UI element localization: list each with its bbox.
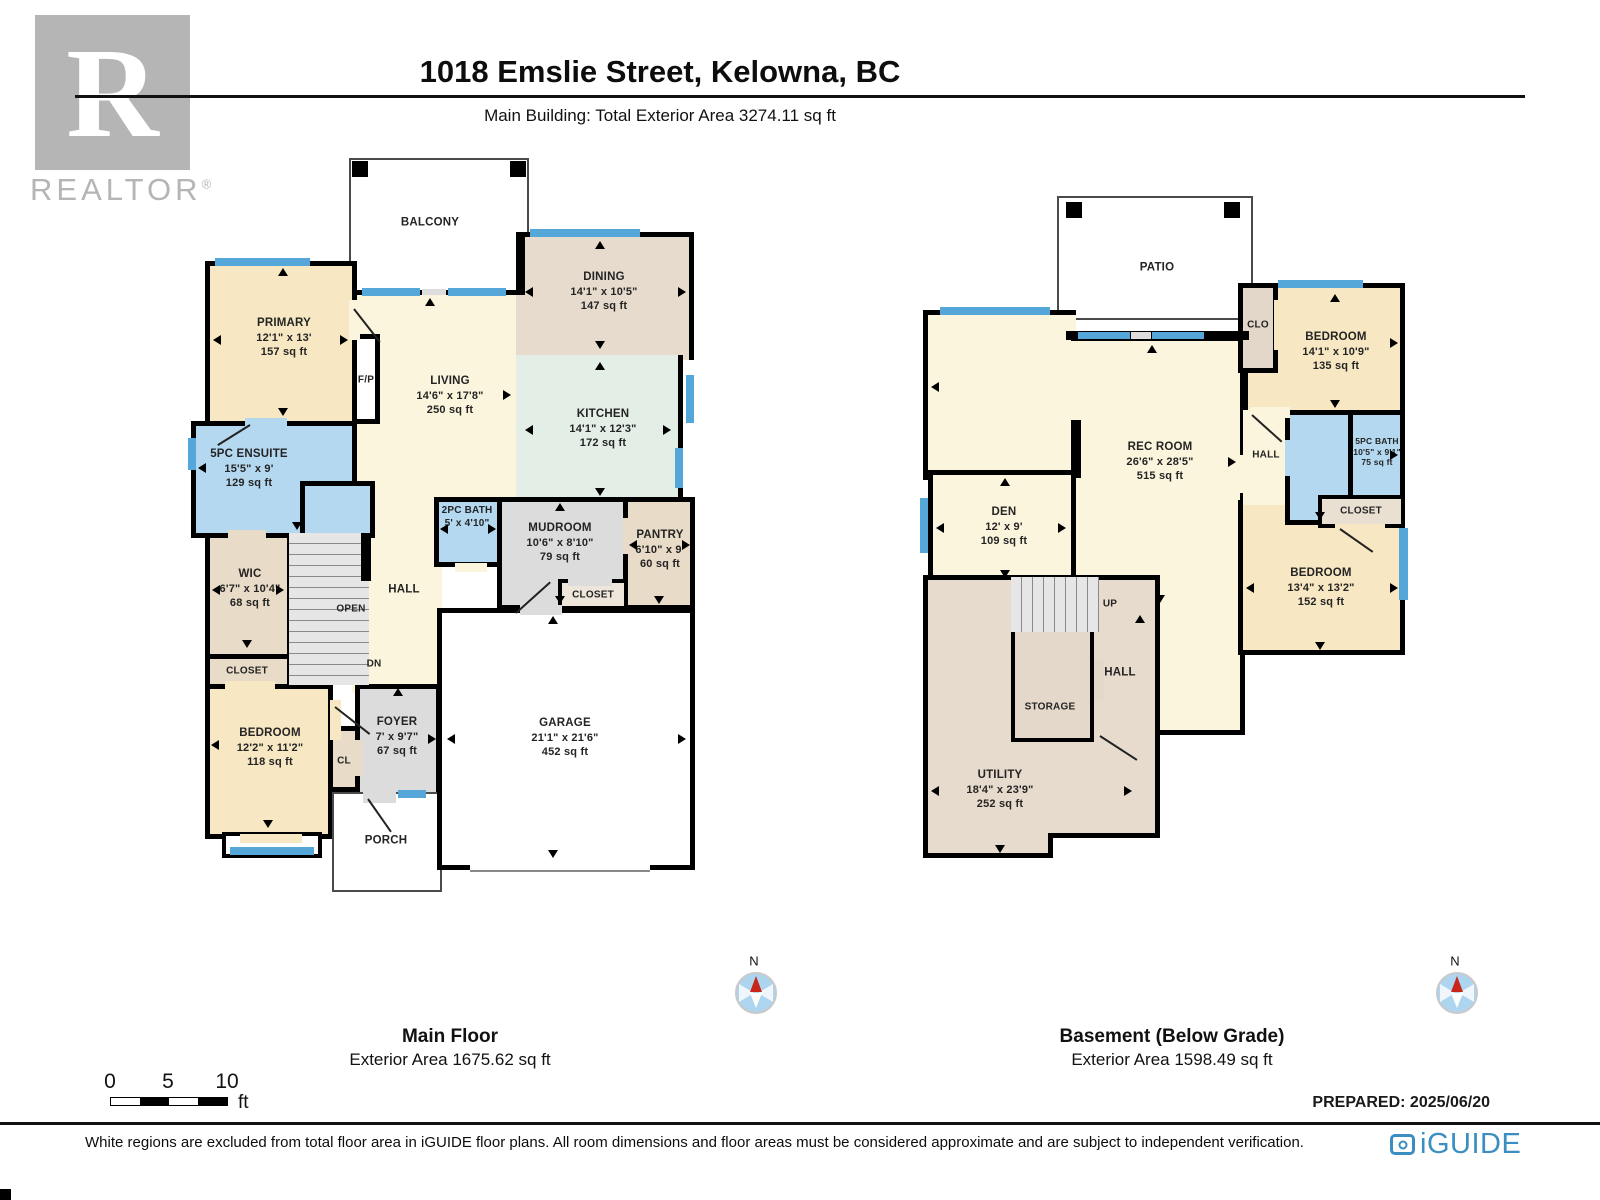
realtor-logo: R <box>35 15 190 170</box>
room-label: FOYER7' x 9'7"67 sq ft <box>376 715 419 759</box>
room-label: CLOSET <box>572 589 614 602</box>
room-label: PRIMARY12'1" x 13'157 sq ft <box>256 316 311 360</box>
room-storage <box>1011 627 1094 742</box>
room-label: BEDROOM14'1" x 10'9"135 sq ft <box>1302 330 1369 374</box>
room-label: PORCH <box>365 834 408 849</box>
room-label: HALL <box>388 583 419 598</box>
room-label: MUDROOM10'6" x 8'10"79 sq ft <box>526 521 593 565</box>
compass-icon <box>1436 972 1478 1014</box>
main-floor-caption: Main Floor Exterior Area 1675.62 sq ft <box>349 1026 550 1070</box>
room-label: OPEN <box>336 603 365 616</box>
room-label: PANTRY6'10" x 9'60 sq ft <box>635 528 684 572</box>
room-label: CL <box>337 755 351 768</box>
room-label: WIC6'7" x 10'4"68 sq ft <box>220 567 281 611</box>
room-label: CLO <box>1247 319 1269 332</box>
room-label: REC ROOM26'6" x 28'5"515 sq ft <box>1126 440 1193 484</box>
footer-disclaimer: White regions are excluded from total fl… <box>85 1134 1304 1151</box>
room-label: BALCONY <box>401 216 459 231</box>
scale-tick: 10 <box>215 1070 238 1094</box>
room-label: HALL <box>1104 666 1135 681</box>
patio-post <box>1066 202 1082 218</box>
room-label: DEN12' x 9'109 sq ft <box>981 505 1027 549</box>
room-label: CLOSET <box>226 665 268 678</box>
room-rec-left <box>923 310 1076 480</box>
room-label: LIVING14'6" x 17'8"250 sq ft <box>416 374 483 418</box>
room-label: CLOSET <box>1340 505 1382 518</box>
room-label: 5PC ENSUITE15'5" x 9'129 sq ft <box>210 447 288 491</box>
floor-title: Basement (Below Grade) <box>1060 1026 1285 1048</box>
compass-north-label: N <box>1450 954 1459 969</box>
page-title: 1018 Emslie Street, Kelowna, BC <box>420 54 901 90</box>
compass-north-label: N <box>749 954 758 969</box>
page-corner-mark <box>0 1189 11 1200</box>
room-label: UP <box>1103 598 1117 611</box>
balcony-post <box>510 161 526 177</box>
floor-plan-page: R REALTOR® 1018 Emslie Street, Kelowna, … <box>0 0 1600 1200</box>
compass-icon <box>735 972 777 1014</box>
footer-rule <box>0 1122 1600 1125</box>
room-label: F/P <box>358 374 374 387</box>
room-label: HALL <box>1252 449 1279 462</box>
floor-area: Exterior Area 1675.62 sq ft <box>349 1050 550 1070</box>
room-label: BEDROOM12'2" x 11'2"118 sq ft <box>237 726 304 770</box>
floor-title: Main Floor <box>349 1026 550 1048</box>
room-ensuite-wc <box>300 481 375 538</box>
room-label: KITCHEN14'1" x 12'3"172 sq ft <box>569 407 636 451</box>
room-label: DINING14'1" x 10'5"147 sq ft <box>570 270 637 314</box>
room-label: 2PC BATH5' x 4'10" <box>442 504 493 530</box>
scale-tick: 5 <box>162 1070 174 1094</box>
room-label: STORAGE <box>1025 701 1076 714</box>
patio-post <box>1224 202 1240 218</box>
prepared-date: PREPARED: 2025/06/20 <box>1312 1094 1490 1112</box>
registered-mark-icon: ® <box>202 177 216 192</box>
balcony-post <box>352 161 368 177</box>
utility-notch <box>1048 833 1160 858</box>
scale-tick: 0 <box>104 1070 116 1094</box>
basement-caption: Basement (Below Grade) Exterior Area 159… <box>1060 1026 1285 1070</box>
room-label: DN <box>367 658 382 671</box>
room-label: GARAGE21'1" x 21'6"452 sq ft <box>531 716 598 760</box>
floor-area: Exterior Area 1598.49 sq ft <box>1060 1050 1285 1070</box>
camera-icon <box>1390 1134 1415 1155</box>
page-subtitle: Main Building: Total Exterior Area 3274.… <box>484 106 836 126</box>
realtor-logo-letter: R <box>66 29 158 157</box>
scale-unit: ft <box>238 1092 249 1114</box>
room-label: BEDROOM13'4" x 13'2"152 sq ft <box>1287 566 1354 610</box>
header-rule <box>75 95 1525 98</box>
iguide-wordmark: iGUIDE <box>1420 1128 1521 1161</box>
scale-bar-segments <box>110 1097 228 1106</box>
stairs-up <box>1011 577 1099 632</box>
room-label: PATIO <box>1140 261 1174 276</box>
room-label: UTILITY18'4" x 23'9"252 sq ft <box>966 768 1033 812</box>
iguide-logo: iGUIDE <box>1390 1128 1521 1161</box>
realtor-wordmark: REALTOR® <box>30 172 215 208</box>
